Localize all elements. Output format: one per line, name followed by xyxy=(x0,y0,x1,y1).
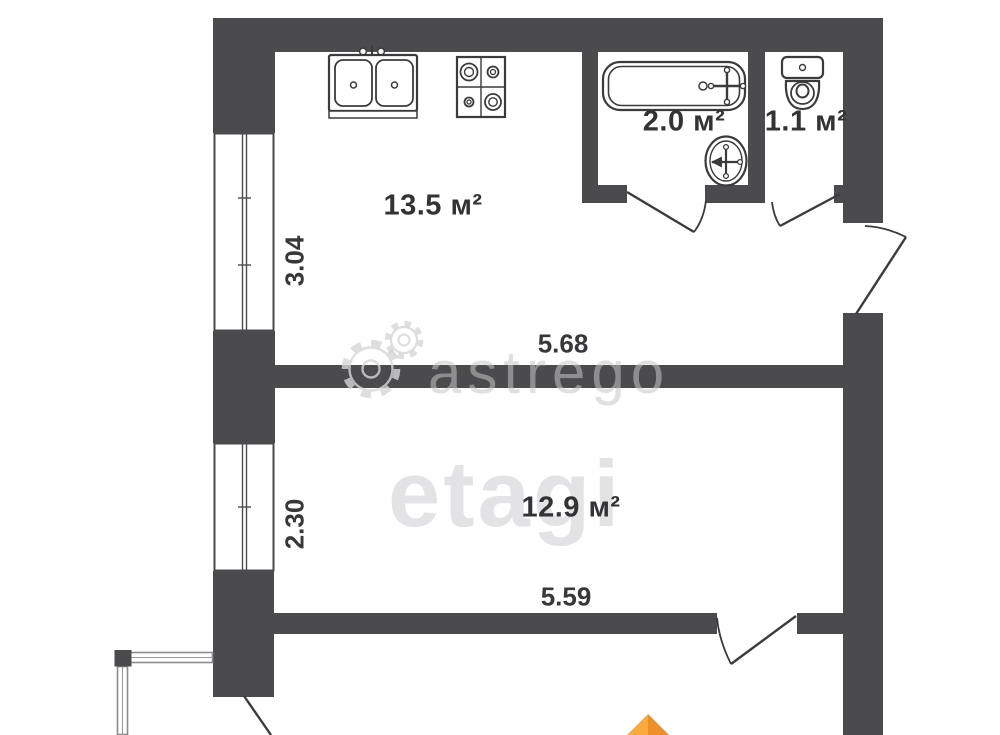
kitchen-area-label: 13.5 м² xyxy=(383,190,482,223)
living-room-window-dimension: 2.30 xyxy=(280,499,311,550)
floor-plan: etagi astrego 13.5 м² 2.0 м² 1.1 м² 12.9… xyxy=(0,0,1000,735)
bathroom-area-label: 2.0 м² xyxy=(643,106,725,139)
labels-layer: 13.5 м² 2.0 м² 1.1 м² 12.9 м² 5.68 5.59 … xyxy=(0,0,1000,735)
kitchen-window-dimension: 3.04 xyxy=(280,236,311,287)
living-room-area-label: 12.9 м² xyxy=(521,492,620,525)
living-room-length-dimension: 5.59 xyxy=(541,582,592,613)
kitchen-length-dimension: 5.68 xyxy=(538,329,589,360)
toilet-area-label: 1.1 м² xyxy=(765,106,847,139)
